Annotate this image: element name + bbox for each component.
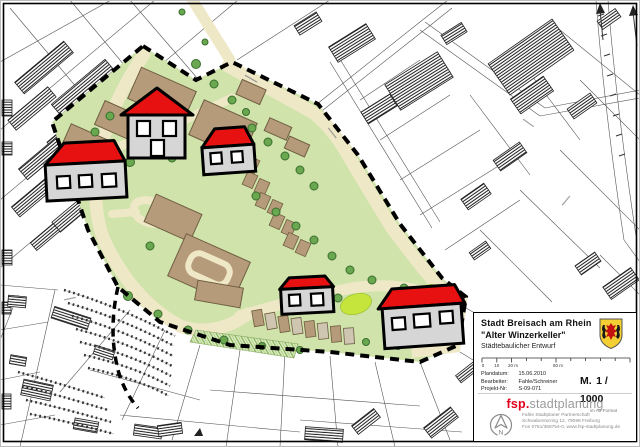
fsp-logo-prefix: fsp.	[506, 397, 529, 411]
plan-date-value: 15.06.2010	[519, 371, 547, 377]
editor-label: Bearbeiter:	[481, 379, 517, 387]
scale-label: M.	[580, 375, 592, 387]
house-icon-southeast	[377, 284, 468, 349]
north-label: N	[499, 430, 504, 437]
scale-bar-label-50m: 50 m	[553, 363, 563, 368]
municipality-title: Stadt Breisach am Rhein	[481, 318, 592, 328]
house-icon-small-south	[279, 276, 335, 315]
north-arrow-icon: N	[488, 412, 514, 438]
plan-date-row: Plandatum: 15.06.2010	[481, 371, 557, 379]
plan-metadata: Plandatum: 15.06.2010 Bearbeiter: Fahle/…	[481, 371, 557, 394]
titleblock-divider	[478, 393, 632, 394]
project-number-value: S-09-071	[519, 386, 542, 392]
breisach-coat-of-arms	[598, 316, 624, 351]
scale-bar-label-10: 10	[494, 363, 500, 368]
plan-sheet: Stadt Breisach am Rhein "Alter Winzerkel…	[0, 0, 640, 447]
scale-bar-label-0: 0	[482, 363, 485, 368]
project-title: "Alter Winzerkeller"	[481, 330, 565, 340]
fsp-logo-suffix: stadtplanung	[530, 397, 604, 411]
fsp-logo: fsp.stadtplanung	[474, 397, 636, 411]
editor-row: Bearbeiter: Fahle/Schreiner	[481, 379, 557, 387]
firm-address: Fahle Stadtplaner Partnerschaft Schwaben…	[522, 413, 620, 431]
plan-date-label: Plandatum:	[481, 371, 517, 379]
firm-contact: Fon 0761/368754-0, www.fsp-stadtplanung.…	[522, 425, 620, 431]
editor-value: Fahle/Schreiner	[519, 379, 558, 385]
scale-bar-label-20m: 20 m	[508, 363, 518, 368]
plan-subtitle: Städtebaulicher Entwurf	[481, 343, 555, 350]
title-block: Stadt Breisach am Rhein "Alter Winzerkel…	[473, 312, 636, 441]
scale-bar: 0 10 20 m 50 m	[480, 354, 632, 368]
